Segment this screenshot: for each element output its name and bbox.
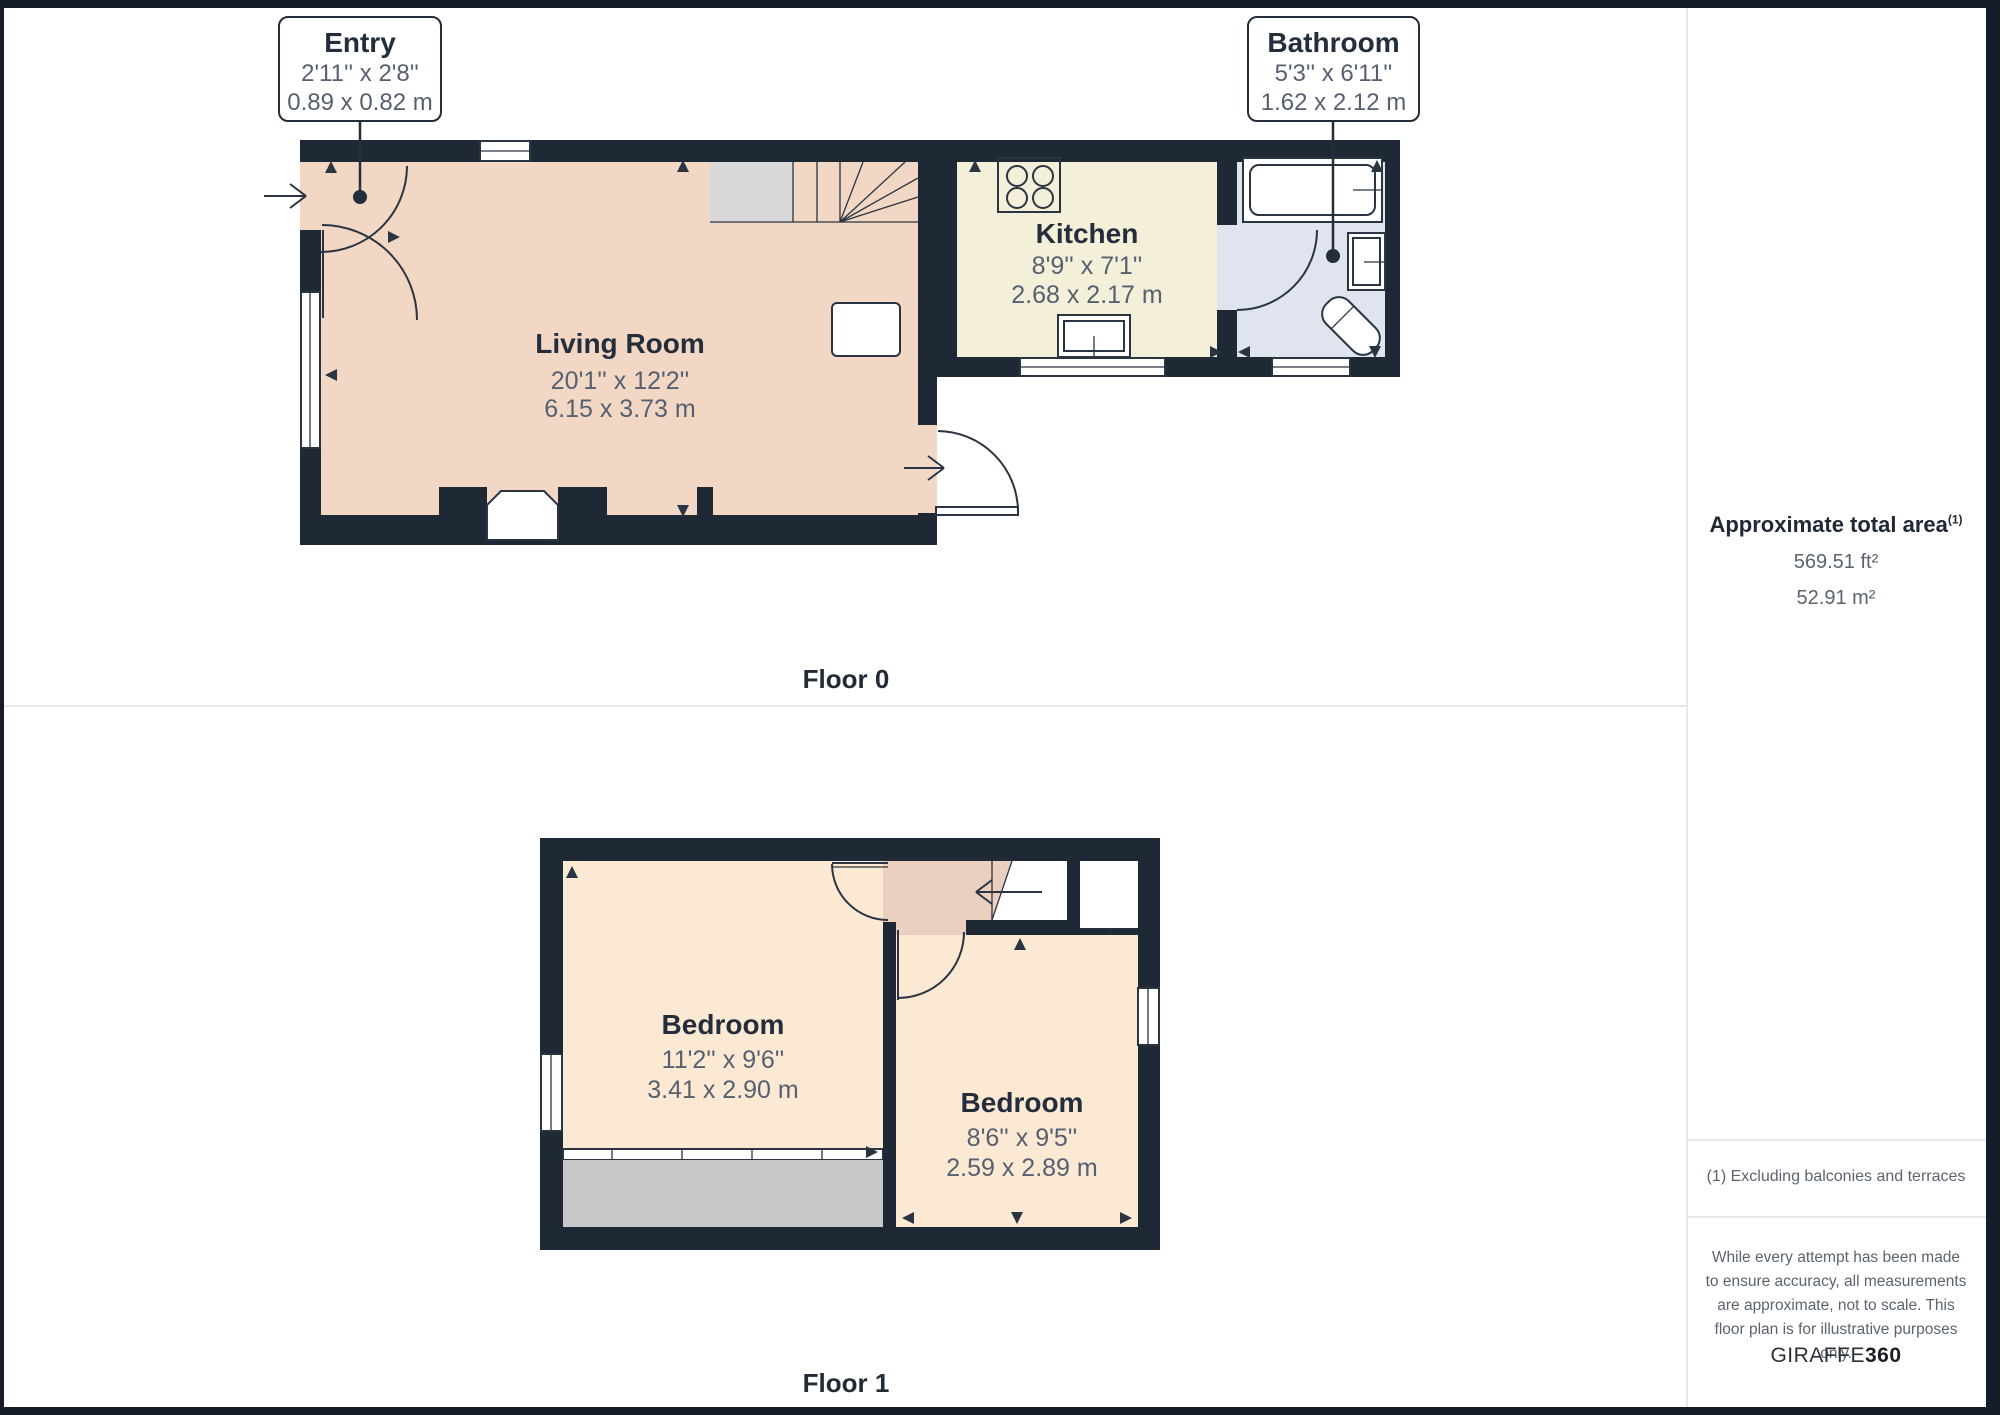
window-kitchen-bottom [1020, 358, 1165, 376]
sidebar-section-divider [1688, 1139, 1986, 1141]
bathtub-icon [1243, 158, 1382, 222]
floor0-label: Floor 0 [746, 664, 946, 695]
logo-text-secondary: 360 [1865, 1344, 1902, 1367]
doorway-gap [883, 861, 896, 922]
total-area-summary: Approximate total area(1) 569.51 ft² 52.… [1686, 512, 1986, 610]
bedroom-left-name: Bedroom [662, 1009, 785, 1040]
entry-callout-metric: 0.89 x 0.82 m [280, 88, 440, 117]
kitchen-name: Kitchen [1036, 218, 1139, 249]
total-area-ft: 569.51 ft² [1686, 551, 1986, 574]
window-bathroom-bottom [1272, 358, 1350, 376]
floor-divider [4, 705, 1686, 707]
kitchen-sink-icon [1058, 315, 1130, 357]
total-area-heading: Approximate total area(1) [1686, 512, 1986, 538]
bathroom-callout-title: Bathroom [1249, 27, 1418, 59]
bathroom-callout-metric: 1.62 x 2.12 m [1249, 88, 1418, 117]
floor1-label: Floor 1 [746, 1368, 946, 1399]
sidebar-section-divider [1688, 1216, 1986, 1218]
bathroom-callout-dot [1326, 249, 1340, 263]
entry-callout-title: Entry [280, 27, 440, 59]
closet-void [1080, 861, 1138, 935]
total-area-m: 52.91 m² [1686, 587, 1986, 610]
living-room-imperial: 20'1'' x 12'2'' [551, 367, 689, 395]
page-border-top [0, 0, 2000, 8]
floor0-plan: Living Room 20'1'' x 12'2'' 6.15 x 3.73 … [264, 122, 1400, 545]
living-room-metric: 6.15 x 3.73 m [544, 395, 695, 423]
floor-plan-canvas: Living Room 20'1'' x 12'2'' 6.15 x 3.73 … [0, 0, 2000, 1415]
floor1-plan: Bedroom 11'2'' x 9'6'' 3.41 x 2.90 m Bed… [540, 838, 1160, 1250]
bathroom-callout: Bathroom 5'3'' x 6'11'' 1.62 x 2.12 m [1247, 16, 1420, 122]
giraffe360-logo: GIRAFFE360 [1686, 1344, 1986, 1368]
bedroom-right-metric: 2.59 x 2.89 m [946, 1154, 1097, 1182]
footnote-marker: (1) [1948, 513, 1963, 527]
wall-protrusion [697, 487, 713, 517]
bedroom-partition-wall [883, 922, 896, 1227]
area-footnote: (1) Excluding balconies and terraces [1686, 1168, 1986, 1186]
bedroom-right-imperial: 8'6'' x 9'5'' [967, 1124, 1078, 1152]
kitchen-imperial: 8'9'' x 7'1'' [1032, 252, 1143, 280]
floor-plan-page: Living Room 20'1'' x 12'2'' 6.15 x 3.73 … [0, 0, 2000, 1415]
bedroom-left-imperial: 11'2'' x 9'6'' [662, 1046, 785, 1074]
window-floor1-right [1138, 988, 1159, 1045]
landing-floor [896, 861, 970, 935]
landing-bottom-wall [966, 920, 1077, 935]
entry-arrow-icon [264, 184, 306, 208]
bathroom-sink-icon [1348, 233, 1385, 290]
entry-callout-dot [353, 190, 367, 204]
page-border-bottom [0, 1407, 2000, 1415]
total-area-heading-text: Approximate total area [1709, 512, 1947, 537]
window-left-wall [301, 292, 320, 448]
window-floor1-left [541, 1054, 562, 1131]
understair-cupboard [832, 303, 900, 356]
window-top-wall [480, 141, 530, 161]
page-border-left [0, 0, 4, 1415]
sidebar-divider [1686, 8, 1688, 1407]
knee-wall [563, 1149, 883, 1160]
logo-text-primary: GIRAFFE [1770, 1344, 1865, 1367]
entry-callout: Entry 2'11'' x 2'8'' 0.89 x 0.82 m [278, 16, 442, 122]
bedroom-left-metric: 3.41 x 2.90 m [647, 1076, 798, 1104]
bedroom-right-floor [896, 935, 1138, 1227]
bedroom-right-name: Bedroom [961, 1087, 1084, 1118]
bedroom-left-floor [563, 861, 883, 1149]
eaves-area [563, 1160, 883, 1227]
kitchen-metric: 2.68 x 2.17 m [1011, 281, 1162, 309]
page-border-right [1986, 0, 2000, 1415]
living-room-name: Living Room [535, 328, 705, 359]
entry-callout-imperial: 2'11'' x 2'8'' [280, 59, 440, 88]
bathroom-callout-imperial: 5'3'' x 6'11'' [1249, 59, 1418, 88]
back-door [936, 431, 1018, 515]
staircase-floor1 [970, 861, 1067, 920]
